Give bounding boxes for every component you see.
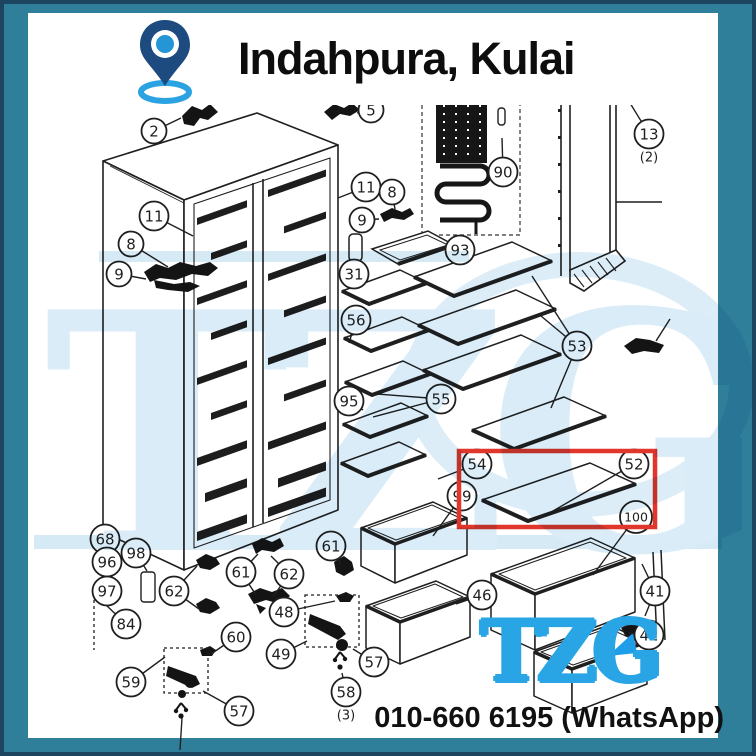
callout-13: 13(2) bbox=[630, 103, 664, 166]
svg-text:59: 59 bbox=[121, 673, 140, 691]
callout-49: 49 bbox=[267, 640, 308, 669]
svg-text:49: 49 bbox=[271, 645, 290, 663]
svg-text:100: 100 bbox=[624, 510, 648, 525]
svg-text:97: 97 bbox=[97, 582, 116, 600]
callout-90: 90 bbox=[489, 138, 518, 187]
callout-84: 84 bbox=[106, 605, 141, 639]
svg-text:57: 57 bbox=[364, 653, 383, 671]
callout-57: 57 bbox=[203, 691, 254, 726]
svg-text:48: 48 bbox=[274, 603, 293, 621]
header: Indahpura, Kulai bbox=[28, 13, 718, 105]
shelf bbox=[482, 463, 636, 521]
svg-text:68: 68 bbox=[95, 530, 114, 548]
shelf bbox=[472, 397, 606, 449]
svg-text:41: 41 bbox=[645, 582, 664, 600]
svg-text:55: 55 bbox=[431, 390, 450, 408]
svg-text:(2): (2) bbox=[640, 151, 658, 166]
svg-text:9: 9 bbox=[114, 265, 124, 283]
callout-95: 95 bbox=[335, 387, 364, 416]
callout-8: 8 bbox=[380, 180, 405, 210]
svg-text:54: 54 bbox=[467, 455, 486, 473]
svg-text:(3): (3) bbox=[337, 709, 355, 724]
svg-text:96: 96 bbox=[97, 553, 116, 571]
callout-60: 60 bbox=[211, 623, 251, 655]
svg-text:95: 95 bbox=[339, 392, 358, 410]
svg-text:60: 60 bbox=[226, 628, 245, 646]
svg-text:62: 62 bbox=[279, 565, 298, 583]
svg-text:2: 2 bbox=[149, 122, 159, 140]
svg-text:56: 56 bbox=[346, 311, 365, 329]
callout-54: 54 bbox=[438, 450, 492, 480]
hinge-detail-boxes bbox=[94, 572, 359, 750]
callout-31: 31 bbox=[340, 260, 369, 289]
svg-text:98: 98 bbox=[126, 544, 145, 562]
svg-text:61: 61 bbox=[321, 537, 340, 555]
svg-text:84: 84 bbox=[116, 615, 135, 633]
svg-text:61: 61 bbox=[231, 563, 250, 581]
callout-53: 53 bbox=[532, 276, 592, 408]
svg-text:8: 8 bbox=[126, 235, 136, 253]
svg-text:90: 90 bbox=[493, 163, 512, 181]
whatsapp-phone-number: 010-660 6195 (WhatsApp) bbox=[374, 702, 724, 735]
callout-93: 93 bbox=[446, 236, 475, 265]
callout-9: 9 bbox=[350, 208, 380, 233]
svg-text:53: 53 bbox=[567, 337, 586, 355]
svg-text:11: 11 bbox=[356, 178, 375, 196]
shelf bbox=[418, 290, 556, 344]
svg-text:62: 62 bbox=[164, 582, 183, 600]
callout-96: 96 bbox=[93, 548, 122, 577]
callout-58: 58(3) bbox=[332, 673, 361, 724]
location-title: Indahpura, Kulai bbox=[238, 33, 708, 85]
svg-text:99: 99 bbox=[452, 487, 471, 505]
callout-61: 61 bbox=[227, 554, 259, 595]
callout-11: 11 bbox=[338, 173, 381, 202]
listing-image-frame: 25118911899013(2)93315653955554529910046… bbox=[0, 0, 756, 756]
callout-57: 57 bbox=[353, 648, 389, 677]
location-pin-icon bbox=[132, 18, 202, 104]
callout-62: 62 bbox=[160, 566, 200, 609]
shelf bbox=[341, 442, 426, 476]
svg-text:58: 58 bbox=[336, 683, 355, 701]
svg-text:11: 11 bbox=[144, 207, 163, 225]
tzg-logo: TZG bbox=[480, 610, 658, 694]
svg-text:9: 9 bbox=[357, 211, 367, 229]
drawer-bin bbox=[361, 502, 467, 583]
svg-text:57: 57 bbox=[229, 702, 248, 720]
shelf bbox=[423, 335, 561, 389]
callout-59: 59 bbox=[117, 657, 166, 697]
svg-text:31: 31 bbox=[344, 265, 363, 283]
svg-text:13: 13 bbox=[639, 125, 658, 143]
tray-part bbox=[349, 231, 454, 264]
callout-97: 97 bbox=[93, 577, 122, 606]
svg-text:93: 93 bbox=[450, 241, 469, 259]
svg-text:52: 52 bbox=[624, 455, 643, 473]
svg-text:8: 8 bbox=[387, 183, 397, 201]
callout-98: 98 bbox=[122, 539, 151, 572]
